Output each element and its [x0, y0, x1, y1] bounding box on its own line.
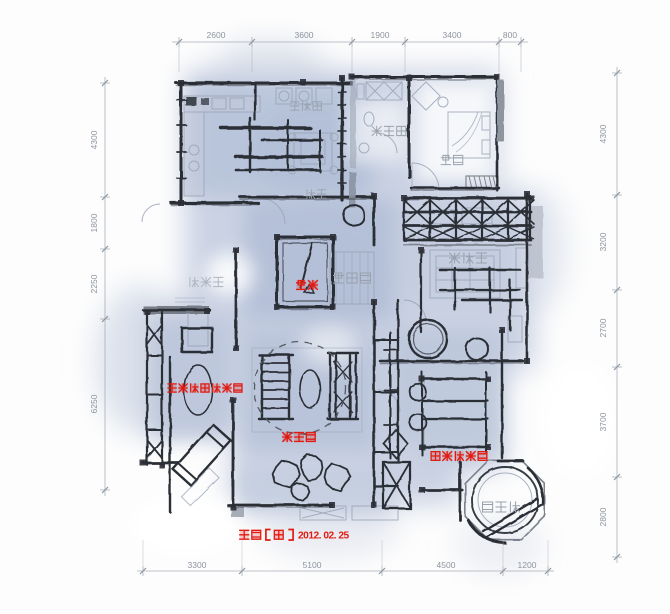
- svg-text:4500: 4500: [437, 560, 456, 570]
- svg-text:3600: 3600: [295, 30, 314, 40]
- svg-text:2250: 2250: [89, 274, 99, 293]
- svg-text:3200: 3200: [598, 232, 608, 251]
- svg-text:3300: 3300: [188, 560, 207, 570]
- svg-text:3400: 3400: [443, 30, 462, 40]
- svg-text:2800: 2800: [598, 507, 608, 526]
- svg-text:2700: 2700: [598, 318, 608, 337]
- svg-text:1800: 1800: [89, 213, 99, 232]
- svg-text:2600: 2600: [207, 30, 226, 40]
- svg-text:5100: 5100: [303, 560, 322, 570]
- svg-text:6250: 6250: [89, 394, 99, 413]
- svg-text:2012. 02. 25: 2012. 02. 25: [298, 531, 349, 542]
- svg-text:4300: 4300: [598, 124, 608, 143]
- svg-text:4300: 4300: [89, 130, 99, 149]
- svg-text:800: 800: [503, 30, 517, 40]
- svg-text:1900: 1900: [371, 30, 390, 40]
- svg-text:3700: 3700: [598, 412, 608, 431]
- svg-text:1200: 1200: [518, 560, 537, 570]
